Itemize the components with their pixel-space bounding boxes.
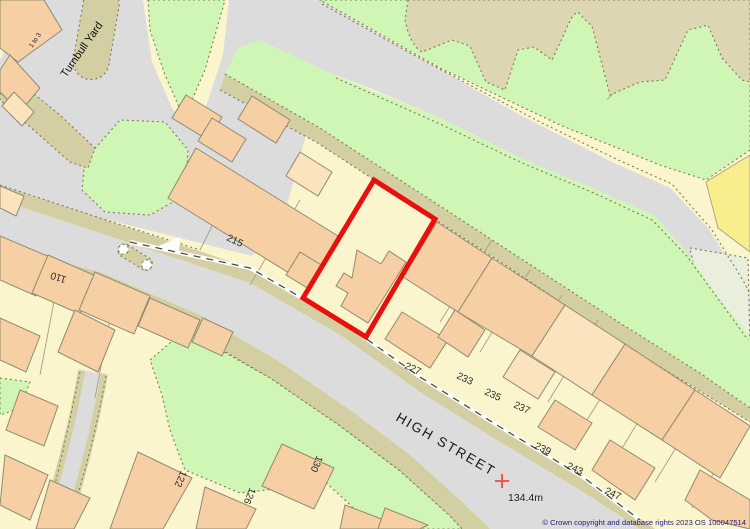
copyright-notice: © Crown copyright and database rights 20… bbox=[542, 518, 746, 527]
os-map-canvas: 134.4m Turnbull Yard 1 to 3 HIGH STREET … bbox=[0, 0, 750, 529]
map-svg: 134.4m Turnbull Yard 1 to 3 HIGH STREET … bbox=[0, 0, 750, 529]
spot-height-label: 134.4m bbox=[508, 492, 543, 504]
